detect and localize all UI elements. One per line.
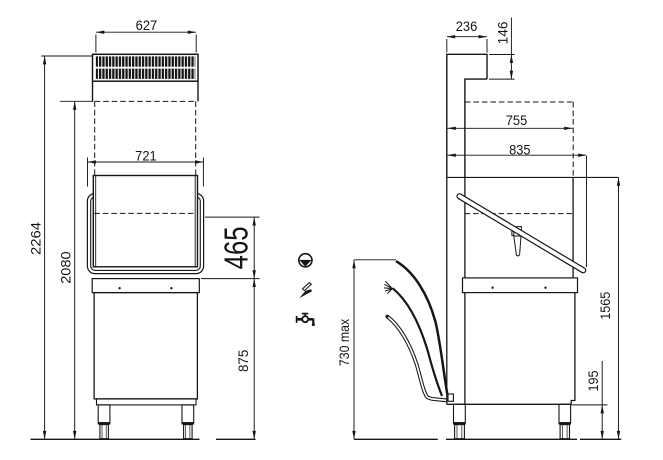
svg-text:2264: 2264 [29,222,45,255]
svg-text:721: 721 [135,148,156,164]
svg-text:465: 465 [218,226,255,269]
svg-text:195: 195 [585,371,601,392]
svg-text:236: 236 [456,19,477,35]
svg-text:875: 875 [236,349,251,372]
svg-text:146: 146 [494,21,510,44]
svg-text:835: 835 [509,142,530,158]
svg-text:730 max: 730 max [336,319,352,367]
svg-text:755: 755 [506,113,527,129]
svg-text:627: 627 [136,18,157,34]
svg-text:1565: 1565 [597,292,613,320]
svg-text:2080: 2080 [59,251,75,283]
